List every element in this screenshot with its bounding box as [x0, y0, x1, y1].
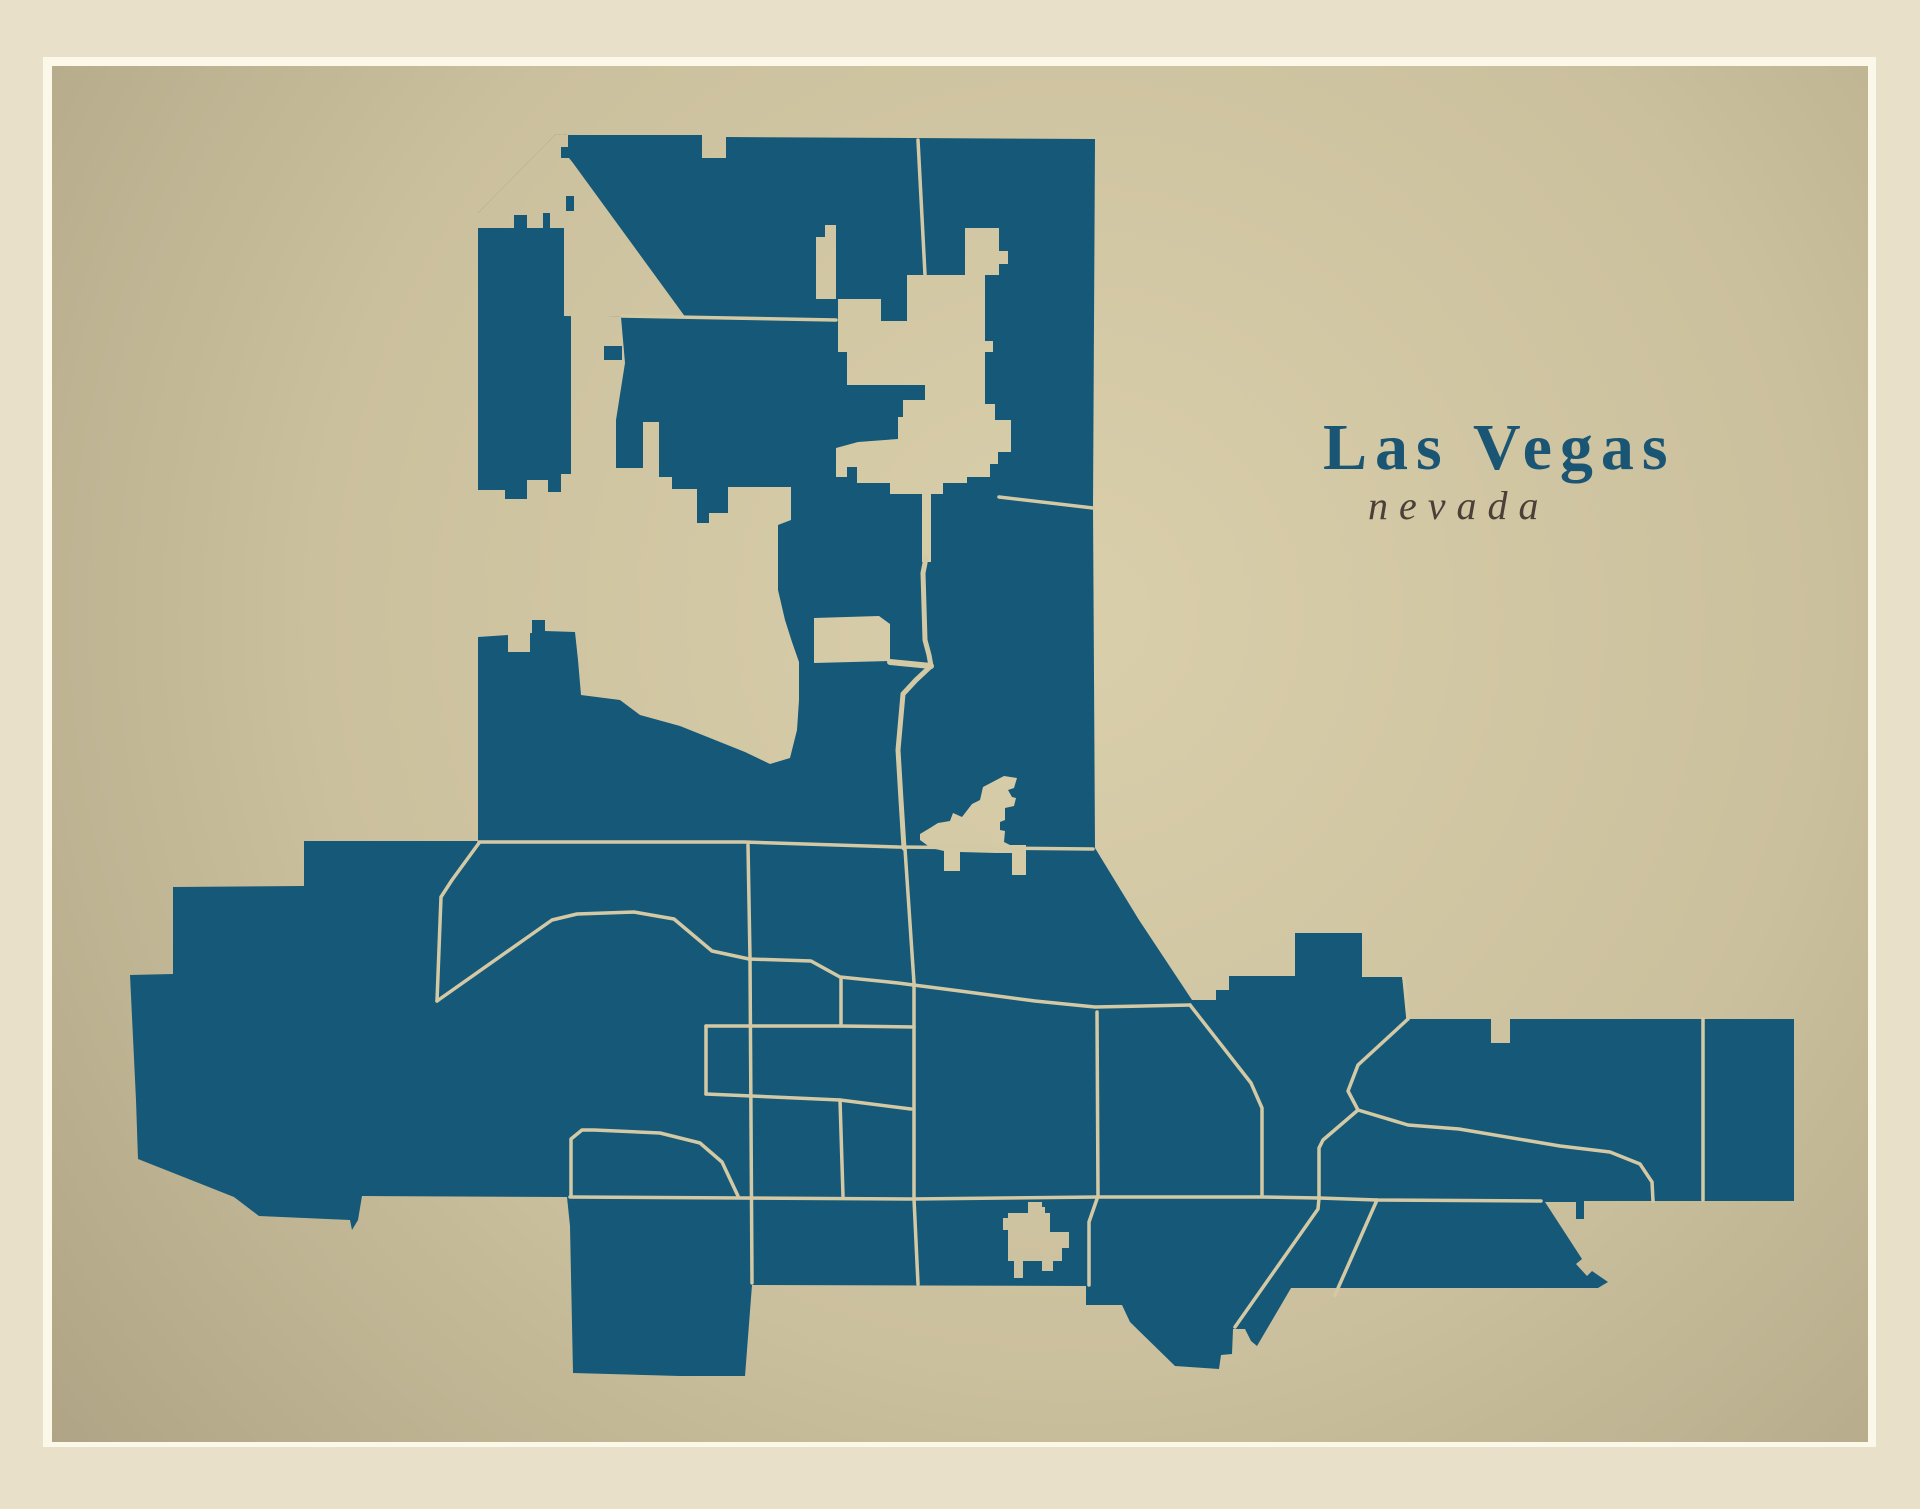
svg-text:nevada: nevada: [1368, 483, 1550, 528]
svg-text:Las Vegas: Las Vegas: [1323, 411, 1676, 484]
